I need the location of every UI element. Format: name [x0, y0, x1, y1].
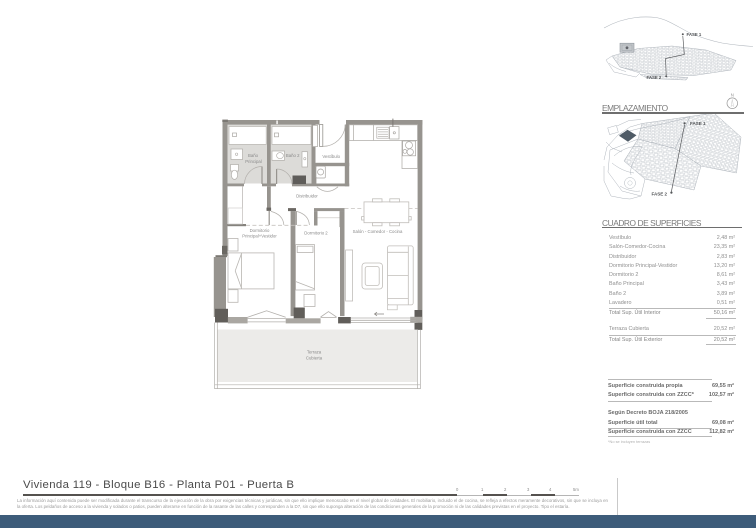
svg-text:Vestíbulo: Vestíbulo — [322, 154, 340, 159]
svg-text:Baño: Baño — [248, 153, 259, 158]
svg-text:Cubierta: Cubierta — [306, 355, 323, 360]
svg-text:FASE 2: FASE 2 — [652, 192, 668, 197]
svg-text:Distribuidor: Distribuidor — [296, 194, 318, 199]
svg-text:FASE 1: FASE 1 — [687, 32, 702, 37]
svg-text:Baño 2: Baño 2 — [286, 153, 300, 158]
svg-text:Dormitorio: Dormitorio — [250, 228, 270, 233]
svg-text:Salón - Comedor - Cocina: Salón - Comedor - Cocina — [353, 229, 403, 234]
svg-text:FASE 1: FASE 1 — [690, 121, 706, 126]
svg-text:Terraza: Terraza — [307, 350, 322, 355]
svg-text:Dormitorio 2: Dormitorio 2 — [304, 230, 328, 235]
svg-text:N: N — [731, 93, 734, 98]
svg-text:FASE 2: FASE 2 — [647, 75, 662, 80]
svg-text:Principal: Principal — [245, 159, 262, 164]
svg-text:Principal+Vestidor: Principal+Vestidor — [242, 234, 277, 239]
